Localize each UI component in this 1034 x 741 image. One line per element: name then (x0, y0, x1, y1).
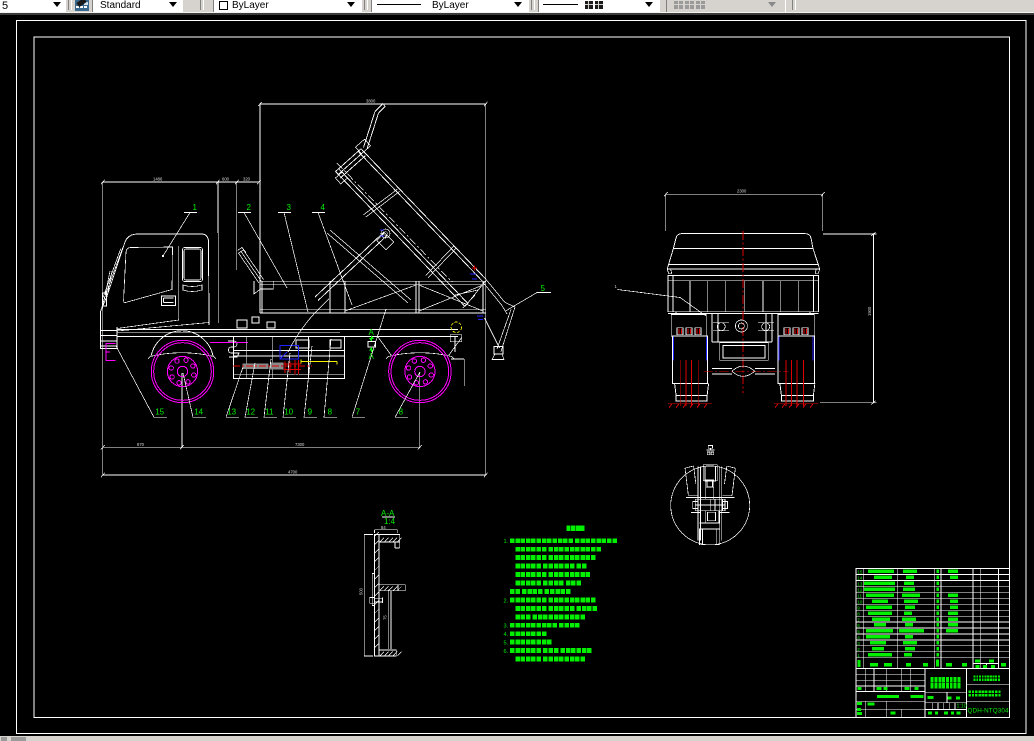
svg-text:15: 15 (857, 570, 863, 575)
svg-text:8: 8 (857, 611, 860, 616)
svg-text:11: 11 (857, 594, 862, 599)
svg-text:10: 10 (284, 408, 293, 417)
svg-text:7: 7 (356, 408, 361, 417)
svg-text:4: 4 (321, 203, 326, 212)
svg-text:2.: 2. (504, 598, 509, 604)
svg-text:10: 10 (857, 600, 863, 605)
svg-text:600: 600 (222, 177, 230, 182)
svg-text:3.: 3. (504, 624, 509, 630)
svg-text:1: 1 (615, 284, 618, 289)
svg-text:11: 11 (265, 408, 274, 417)
svg-text:4700: 4700 (288, 470, 298, 475)
svg-text:870: 870 (137, 442, 145, 447)
svg-text:3800: 3800 (366, 99, 376, 104)
svg-text:1:10: 1:10 (957, 703, 967, 709)
svg-text:14: 14 (857, 576, 863, 581)
svg-text:9: 9 (308, 408, 313, 417)
svg-text:13: 13 (857, 582, 863, 587)
svg-text:1:4: 1:4 (384, 517, 396, 526)
svg-text:7: 7 (857, 617, 860, 622)
svg-text:1: 1 (193, 203, 198, 212)
svg-text:12: 12 (246, 408, 255, 417)
svg-text:6: 6 (857, 623, 860, 628)
svg-text:15: 15 (155, 408, 164, 417)
svg-text:2: 2 (857, 647, 860, 652)
svg-text:8: 8 (328, 408, 333, 417)
svg-text:2: 2 (247, 203, 252, 212)
svg-text:1: 1 (857, 653, 860, 658)
svg-text:84: 84 (381, 525, 386, 530)
svg-text:75: 75 (383, 615, 388, 620)
svg-text:3: 3 (857, 641, 860, 646)
svg-text:2300: 2300 (737, 189, 747, 194)
svg-text:5: 5 (857, 629, 860, 634)
svg-text:9: 9 (857, 605, 860, 610)
svg-text:1900: 1900 (867, 306, 872, 316)
svg-text:6.: 6. (504, 649, 509, 655)
svg-text:4: 4 (857, 635, 860, 640)
svg-text:500: 500 (359, 587, 364, 595)
svg-text:4.: 4. (504, 632, 509, 638)
svg-text:A: A (369, 328, 375, 337)
svg-text:QDH-NTQ304: QDH-NTQ304 (968, 708, 1009, 715)
svg-text:A: A (369, 352, 375, 361)
svg-text:12: 12 (857, 588, 863, 593)
svg-text:320: 320 (243, 177, 251, 182)
svg-text:5.: 5. (504, 641, 509, 647)
svg-text:3: 3 (287, 203, 292, 212)
svg-text:1.: 1. (504, 539, 509, 545)
svg-text:1486: 1486 (153, 177, 163, 182)
svg-text:7300: 7300 (295, 442, 305, 447)
svg-text:14: 14 (194, 408, 203, 417)
svg-text:5: 5 (541, 284, 546, 293)
